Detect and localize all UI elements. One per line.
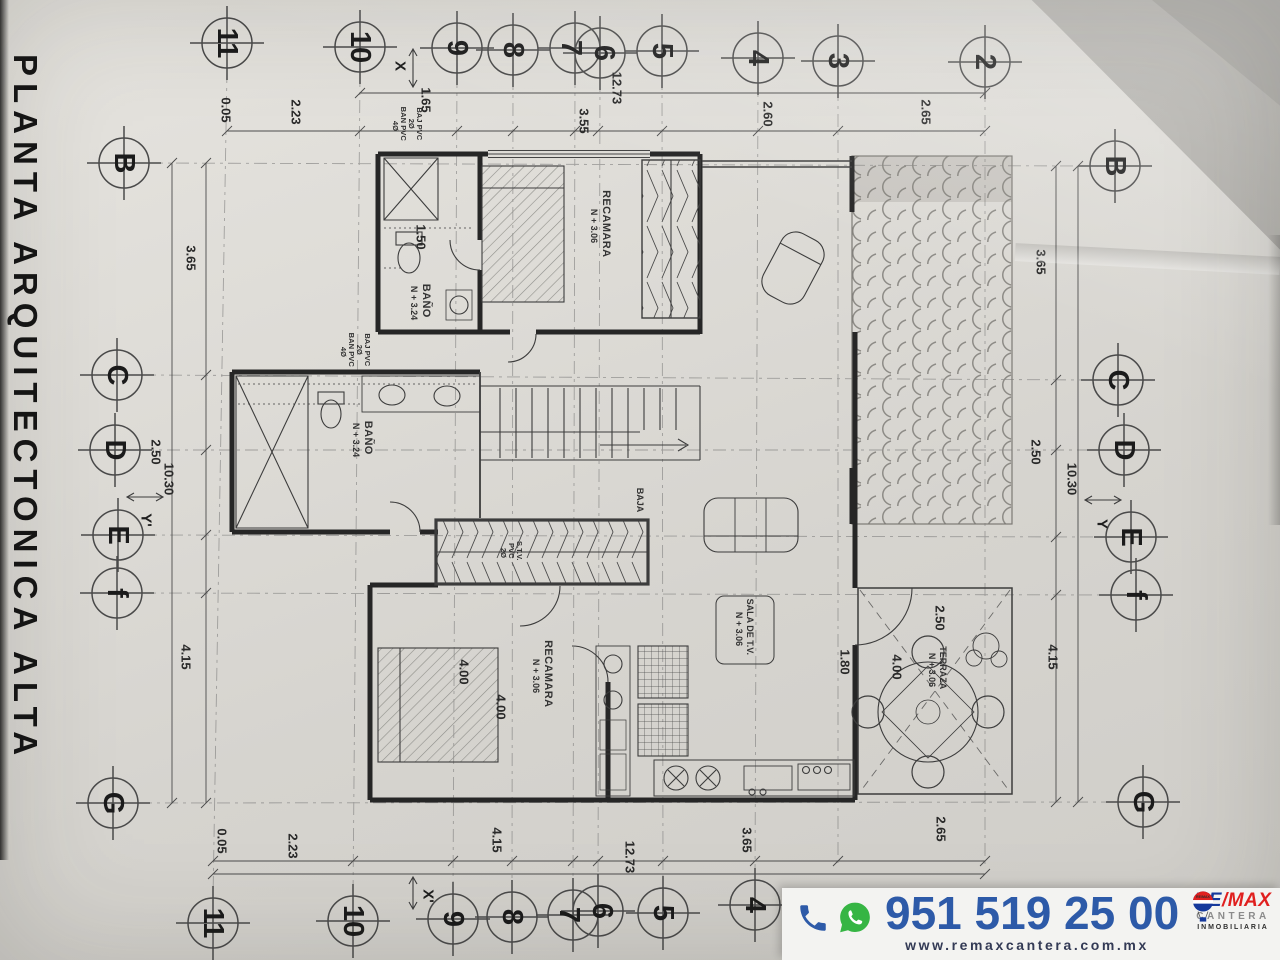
svg-text:RE/MAX: RE/MAX [1196, 895, 1211, 899]
phone-icon [796, 901, 830, 935]
website-url: www.remaxcantera.com.mx [877, 937, 1177, 953]
whatsapp-icon [836, 899, 874, 937]
phone-number: 951 519 25 00 [885, 886, 1185, 940]
remax-balloon-icon: RE/MAX [1188, 890, 1218, 923]
paper-fold-highlight [0, 0, 1280, 960]
remax-tagline: INMOBILIARIA [1188, 924, 1278, 931]
floor-plan-photo: PLANTA ARQUITECTONICA ALTA [0, 0, 1280, 960]
remax-logo: RE/MAX RE/MAX CANTERA INMOBILIARIA [1188, 890, 1278, 931]
contact-banner: 951 519 25 00 www.remaxcantera.com.mx RE… [782, 888, 1280, 960]
